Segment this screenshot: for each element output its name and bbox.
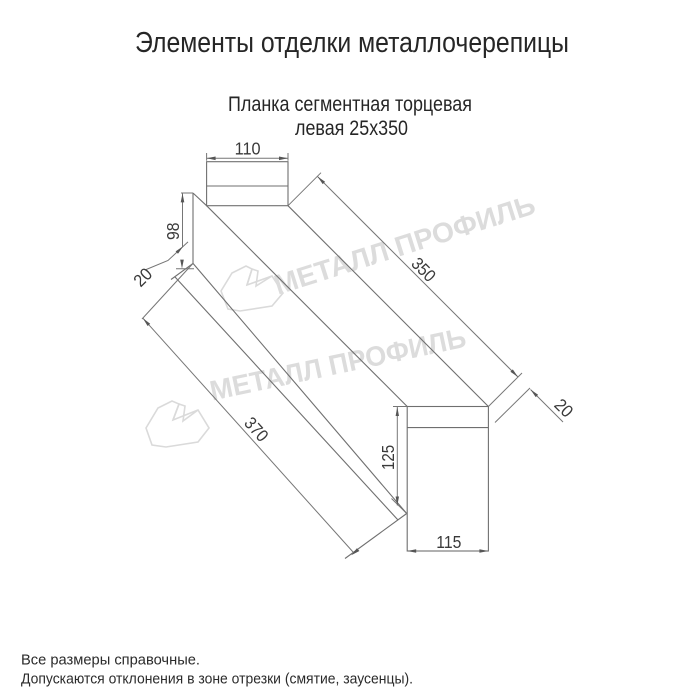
svg-text:Элементы отделки металлочерепи: Элементы отделки металлочерепицы — [135, 27, 569, 59]
svg-text:Все размеры справочные.: Все размеры справочные. — [21, 652, 200, 669]
svg-text:125: 125 — [378, 445, 398, 470]
svg-text:115: 115 — [436, 532, 461, 552]
svg-text:20: 20 — [550, 395, 577, 422]
svg-text:МЕТАЛЛ ПРОФИЛЬ: МЕТАЛЛ ПРОФИЛЬ — [207, 322, 469, 407]
svg-text:98: 98 — [163, 223, 183, 241]
svg-text:МЕТАЛЛ ПРОФИЛЬ: МЕТАЛЛ ПРОФИЛЬ — [270, 189, 539, 301]
svg-text:110: 110 — [235, 139, 261, 159]
svg-text:Допускаются отклонения в зоне: Допускаются отклонения в зоне отрезки (с… — [21, 671, 413, 688]
svg-text:20: 20 — [129, 264, 156, 291]
svg-text:левая 25х350: левая 25х350 — [295, 117, 408, 140]
svg-text:370: 370 — [240, 413, 272, 446]
svg-text:Планка сегментная торцевая: Планка сегментная торцевая — [228, 93, 472, 116]
